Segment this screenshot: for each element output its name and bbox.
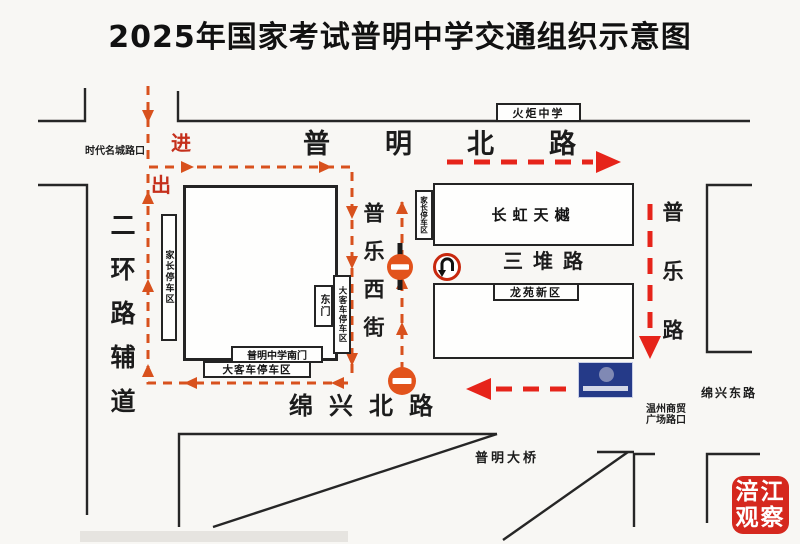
arrow-left-icon xyxy=(466,378,491,400)
changhong-tianyue-building: 长虹天樾 xyxy=(433,183,634,246)
road-label-mianxing-east: 绵兴东路 xyxy=(701,387,757,399)
road-line-east-block xyxy=(707,185,752,352)
no-u-turn-sign xyxy=(435,255,460,280)
road-label-pule-road: 普乐路 xyxy=(661,201,682,378)
road-label-sandui: 三堆路 xyxy=(503,251,593,271)
road-line-west-block xyxy=(38,185,87,515)
arrow-down-icon xyxy=(346,206,358,219)
road-label-pule-west-street: 普乐西街 xyxy=(362,202,383,354)
label-wenzhou-plaza-line2: 广场路口 xyxy=(646,415,686,426)
bus-parking-side-zone: 大客车停车区 xyxy=(333,275,351,354)
road-line-southwest-block xyxy=(179,434,497,527)
no-entry-sign xyxy=(387,254,413,280)
watermark-line2: 观察 xyxy=(736,505,786,531)
arrow-down-icon xyxy=(142,110,154,123)
arrow-down-icon xyxy=(639,336,661,359)
road-label-puming-bridge: 普明大桥 xyxy=(475,452,539,465)
arrow-down-icon xyxy=(346,353,358,366)
faded-strip xyxy=(80,531,348,542)
arrow-right-icon xyxy=(181,161,194,173)
arrow-up-icon xyxy=(142,364,154,377)
road-label-second-ring-side: 二环路辅道 xyxy=(109,212,134,432)
longyuan-new-district-box: 龙苑新区 xyxy=(493,283,579,301)
road-line-puming-north xyxy=(178,91,750,121)
road-label-mianxing-north: 绵兴北路 xyxy=(289,394,449,418)
label-wenzhou-plaza-line1: 温州商贸 xyxy=(646,404,686,415)
bus-parking-south-zone: 大客车停车区 xyxy=(203,361,311,378)
arrow-left-icon xyxy=(331,377,344,389)
no-entry-sign xyxy=(388,367,416,395)
arrow-down-icon xyxy=(346,256,358,269)
label-wenzhou-plaza-intersection: 温州商贸 广场路口 xyxy=(646,404,686,426)
arrow-left-icon xyxy=(184,377,197,389)
arrow-right-icon xyxy=(319,161,332,173)
flow-label-enter: 进 xyxy=(171,133,191,153)
east-gate-box: 东门 xyxy=(314,285,333,327)
blue-notice-sign xyxy=(578,362,633,398)
torch-middle-school-box: 火炬中学 xyxy=(496,103,581,122)
arrow-up-icon xyxy=(396,322,408,335)
traffic-diagram: 2025年国家考试普明中学交通组织示意图 xyxy=(0,0,800,544)
bridge-ramp-line-1 xyxy=(213,434,497,527)
arrow-up-icon xyxy=(396,201,408,214)
flow-label-exit: 出 xyxy=(151,175,171,195)
school-building xyxy=(183,185,338,361)
parents-parking-west-zone: 家长停车区 xyxy=(161,214,177,341)
road-label-puming-north: 普明北路 xyxy=(303,131,631,158)
fujiang-guancha-watermark: 涪江 观察 xyxy=(732,476,789,534)
road-line-southeast-block-1 xyxy=(634,454,655,527)
blue-sign-emblem-icon xyxy=(599,367,614,382)
road-line-topleft-block xyxy=(38,88,85,121)
watermark-line1: 涪江 xyxy=(736,479,786,505)
arrow-up-icon xyxy=(142,279,154,292)
label-shidai-mingcheng-intersection: 时代名城路口 xyxy=(85,147,145,157)
parents-parking-east-zone: 家长停车区 xyxy=(415,190,433,240)
blue-sign-text-strip xyxy=(583,386,628,391)
